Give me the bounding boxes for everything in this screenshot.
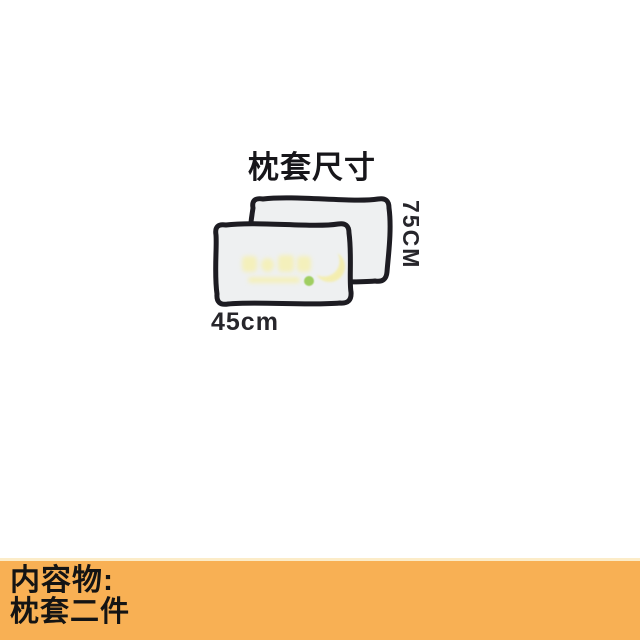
height-dimension-label: 75CM [397,200,424,269]
watermark-green-dot [304,276,314,286]
watermark-glyph [242,256,257,272]
product-infographic: 枕套尺寸 45cm 75CM 内容物: 枕套二件 [0,0,640,640]
contents-heading: 内容物: [10,564,640,597]
crescent-moon-icon [314,251,345,282]
watermark-glyph [278,255,294,272]
watermark [240,250,350,292]
watermark-glyph [261,258,274,272]
contents-value: 枕套二件 [10,597,640,629]
width-dimension-label: 45cm [211,308,279,337]
watermark-glyph [297,256,311,272]
watermark-glyph [248,277,300,283]
contents-footer-band: 内容物: 枕套二件 [0,558,640,640]
